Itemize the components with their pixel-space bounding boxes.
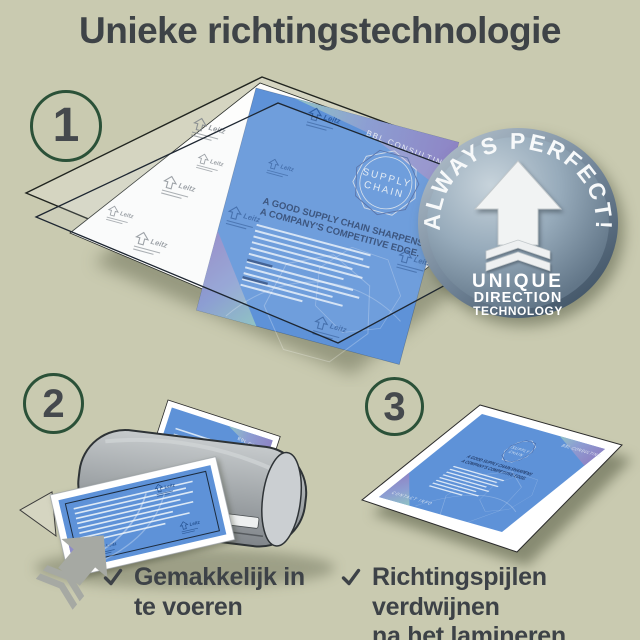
scene-step1-pouch-loading: BBL CONSULTING SUPPLY CHAIN A GOOD SUPPL… [0,55,640,387]
page-title: Unieke richtingstechnologie [0,10,640,52]
laminated-document: BBL CONSULTING SUPPLY CHAIN A GOOD SUPPL… [362,405,622,552]
checklist-text-line: te voeren [134,593,305,623]
checkmark-icon [341,567,361,587]
badge-line-technology: TECHNOLOGY [473,304,563,318]
checklist-item-easy-feed: Gemakkelijk in te voeren [103,563,305,622]
checklist-text-line: Richtingspijlen verdwijnen [372,563,640,622]
infographic-canvas: Leitz Unieke richtingstechnologie 1 2 3 [0,0,640,640]
checklist-text-line: na het lamineren [372,622,640,640]
checklist-text-line: Gemakkelijk in [134,563,305,593]
checkmark-icon [103,567,123,587]
quality-badge: ALWAYS PERFECT! UNIQUE DIRECTION TECHNOL… [418,128,624,326]
checklist-item-arrows-disappear: Richtingspijlen verdwijnen na het lamine… [341,563,640,640]
badge-line-unique: UNIQUE [472,271,564,292]
